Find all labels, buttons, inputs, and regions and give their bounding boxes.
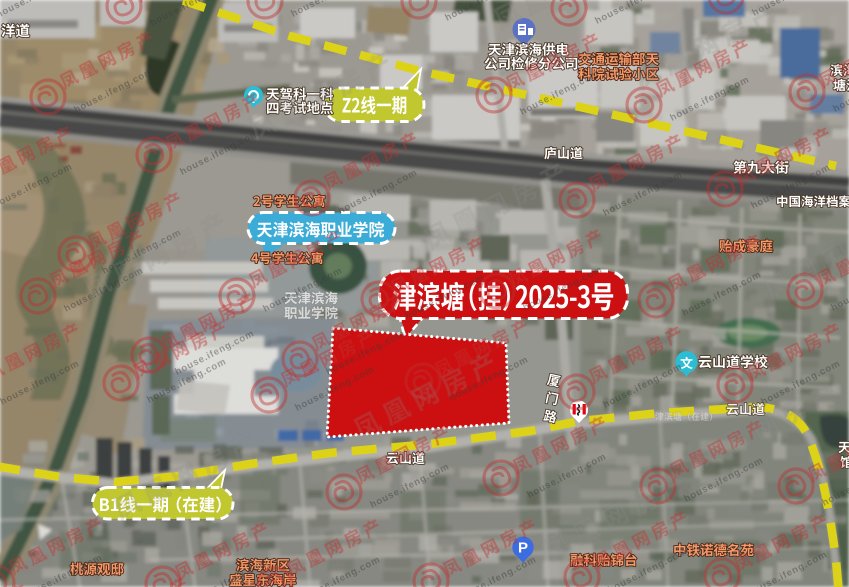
svg-text:P: P xyxy=(518,540,528,557)
